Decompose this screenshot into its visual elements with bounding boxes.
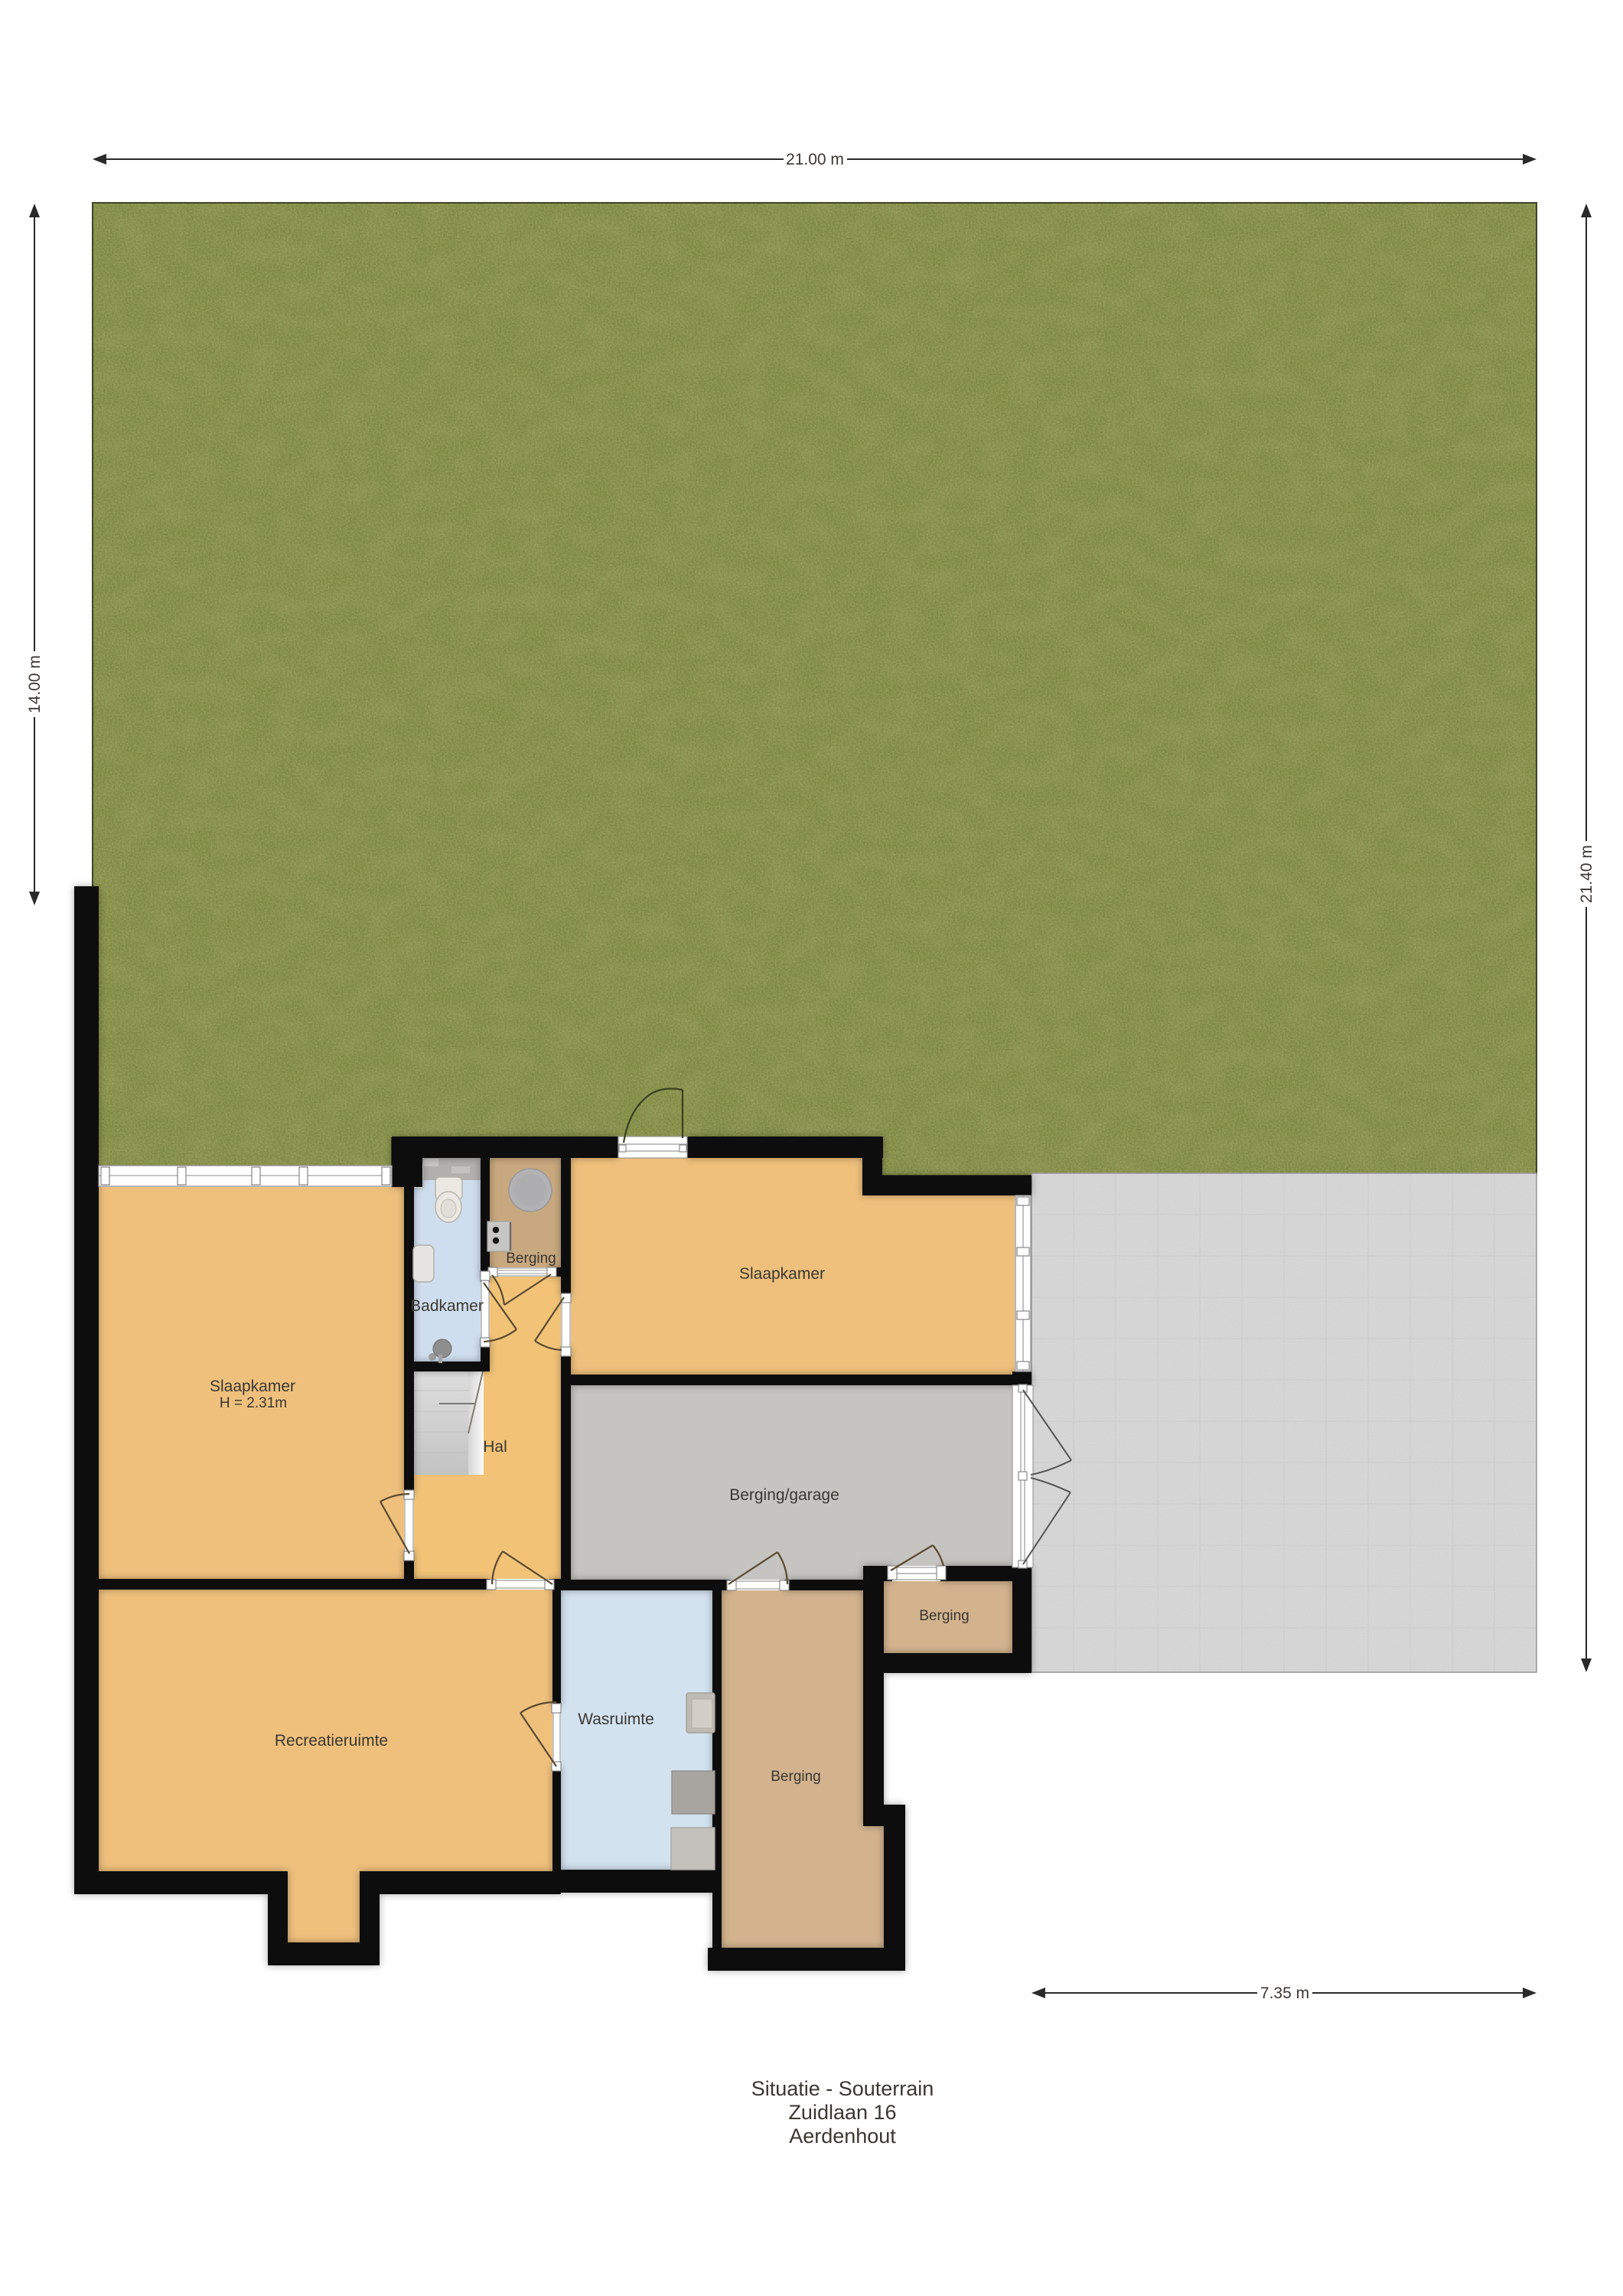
svg-text:Situatie - Souterrain: Situatie - Souterrain: [751, 2077, 934, 2100]
svg-text:Berging: Berging: [771, 1769, 821, 1785]
svg-text:Aerdenhout: Aerdenhout: [789, 2125, 896, 2148]
svg-text:Berging/garage: Berging/garage: [729, 1486, 839, 1504]
svg-text:21.00 m: 21.00 m: [786, 151, 844, 168]
svg-text:H = 2.31m: H = 2.31m: [220, 1395, 287, 1411]
svg-text:Hal: Hal: [483, 1438, 507, 1456]
svg-text:21.40 m: 21.40 m: [1578, 845, 1595, 903]
svg-text:Berging: Berging: [506, 1251, 556, 1267]
svg-text:Wasruimte: Wasruimte: [578, 1711, 654, 1728]
svg-text:Slaapkamer: Slaapkamer: [739, 1265, 825, 1283]
svg-text:7.35 m: 7.35 m: [1260, 1985, 1309, 2002]
svg-text:Zuidlaan 16: Zuidlaan 16: [788, 2101, 896, 2124]
svg-text:Slaapkamer: Slaapkamer: [210, 1378, 295, 1395]
svg-text:14.00 m: 14.00 m: [26, 655, 44, 713]
svg-text:Badkamer: Badkamer: [410, 1297, 484, 1315]
svg-text:Berging: Berging: [919, 1608, 970, 1624]
svg-text:Recreatieruimte: Recreatieruimte: [275, 1732, 388, 1750]
